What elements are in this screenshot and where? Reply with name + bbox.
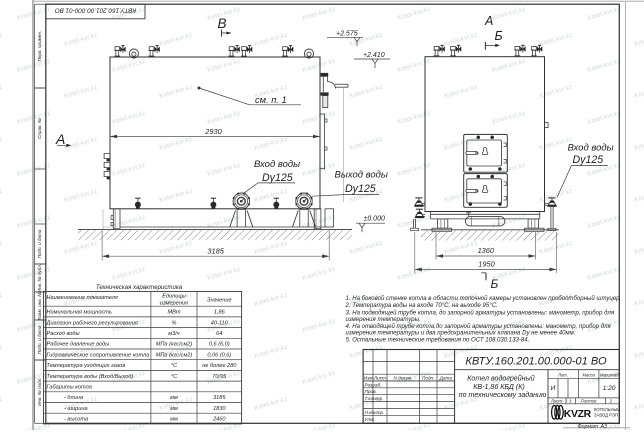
- svg-text:Kotel-kvr.kz: Kotel-kvr.kz: [539, 84, 574, 100]
- svg-text:2460: 2460: [212, 417, 226, 423]
- svg-text:±0.000: ±0.000: [364, 216, 385, 223]
- svg-text:N докум.: N докум.: [394, 375, 413, 380]
- svg-text:Лист: Лист: [550, 399, 562, 404]
- svg-text:Kotel-kvr.kz: Kotel-kvr.kz: [634, 344, 644, 360]
- svg-text:Kotel-kvr.kz: Kotel-kvr.kz: [159, 188, 194, 204]
- svg-text:Справ. №: Справ. №: [37, 118, 42, 139]
- svg-text:Dy125: Dy125: [345, 183, 376, 195]
- svg-text:Kotel-kvr.kz: Kotel-kvr.kz: [492, 58, 527, 74]
- svg-text:Температура воды (Вход/Выход): Температура воды (Вход/Выход): [47, 374, 134, 380]
- svg-text:А3: А3: [600, 424, 607, 430]
- svg-text:Вход воды: Вход воды: [568, 142, 614, 153]
- svg-text:Kotel-kvr.kz: Kotel-kvr.kz: [254, 240, 289, 256]
- svg-text:- длина: - длина: [64, 395, 83, 401]
- svg-text:Kotel-kvr.kz: Kotel-kvr.kz: [0, 84, 3, 100]
- svg-text:Kotel-kvr.kz: Kotel-kvr.kz: [634, 188, 644, 204]
- svg-text:Kotel-kvr.kz: Kotel-kvr.kz: [64, 188, 99, 204]
- svg-text:Kotel-kvr.kz: Kotel-kvr.kz: [0, 292, 3, 308]
- svg-text:Dy125: Dy125: [573, 154, 604, 166]
- svg-text:Дата: Дата: [439, 375, 453, 380]
- svg-text:Расход воды: Расход воды: [47, 331, 80, 337]
- svg-text:Габариты котла: Габариты котла: [47, 385, 92, 391]
- svg-text:Kotel-kvr.kz: Kotel-kvr.kz: [397, 266, 432, 282]
- svg-text:Kotel-kvr.kz: Kotel-kvr.kz: [349, 84, 384, 100]
- svg-text:МВт: МВт: [167, 310, 180, 316]
- svg-text:Kotel-kvr.kz: Kotel-kvr.kz: [112, 214, 147, 230]
- svg-text:Инв. № дубл.: Инв. № дубл.: [37, 264, 42, 292]
- svg-text:Kotel-kvr.kz: Kotel-kvr.kz: [0, 188, 3, 204]
- svg-text:Подп. и дата: Подп. и дата: [37, 325, 42, 354]
- svg-text:40-110: 40-110: [211, 320, 229, 326]
- svg-text:м3/ч: м3/ч: [168, 331, 179, 337]
- svg-text:КВТУ.160.201.00.000-01 ВО: КВТУ.160.201.00.000-01 ВО: [465, 356, 607, 368]
- svg-text:Наименование показателя: Наименование показателя: [47, 295, 118, 301]
- svg-text:Kotel-kvr.kz: Kotel-kvr.kz: [0, 136, 3, 152]
- svg-text:Kotel-kvr.kz: Kotel-kvr.kz: [492, 162, 527, 178]
- svg-text:мм: мм: [170, 395, 178, 401]
- svg-text:Kotel-kvr.kz: Kotel-kvr.kz: [634, 396, 644, 412]
- svg-text:Kotel-kvr.kz: Kotel-kvr.kz: [112, 162, 147, 178]
- svg-text:Единицы: Единицы: [162, 294, 185, 300]
- svg-text:Kotel-kvr.kz: Kotel-kvr.kz: [397, 6, 432, 22]
- svg-text:Kotel-kvr.kz: Kotel-kvr.kz: [254, 32, 289, 48]
- svg-text:Диапазон рабочего регулировани: Диапазон рабочего регулирования: [46, 320, 138, 326]
- svg-text:Kotel-kvr.kz: Kotel-kvr.kz: [302, 6, 337, 22]
- svg-text:Рабочее давление воды: Рабочее давление воды: [47, 342, 110, 348]
- svg-text:КОТЕЛЬНЫЙ: КОТЕЛЬНЫЙ: [594, 407, 620, 412]
- svg-text:Kotel-kvr.kz: Kotel-kvr.kz: [587, 110, 622, 126]
- svg-text:Kotel-kvr.kz: Kotel-kvr.kz: [397, 162, 432, 178]
- svg-text:Техническая характеристика: Техническая характеристика: [96, 284, 183, 291]
- svg-text:Kotel-kvr.kz: Kotel-kvr.kz: [159, 240, 194, 256]
- svg-text:Kotel-kvr.kz: Kotel-kvr.kz: [207, 266, 242, 282]
- svg-text:KVZR: KVZR: [564, 409, 592, 420]
- svg-text:КВ-1,86 КБД (К): КВ-1,86 КБД (К): [473, 383, 525, 391]
- svg-text:Kotel-kvr.kz: Kotel-kvr.kz: [397, 110, 432, 126]
- svg-text:70/95: 70/95: [212, 374, 227, 380]
- svg-text:Kotel-kvr.kz: Kotel-kvr.kz: [112, 110, 147, 126]
- svg-text:2. Температура воды на входе: 2. Температура воды на входе 70°С, на вы…: [345, 303, 498, 309]
- svg-text:Б: Б: [491, 277, 499, 291]
- svg-text:4. На отводящей трубе котла,д: 4. На отводящей трубе котла,до запорной …: [346, 323, 612, 330]
- svg-text:Kotel-kvr.kz: Kotel-kvr.kz: [254, 344, 289, 360]
- svg-text:Номинальная мощность: Номинальная мощность: [47, 310, 112, 316]
- svg-text:Kotel-kvr.kz: Kotel-kvr.kz: [64, 136, 99, 152]
- svg-text:А: А: [484, 14, 493, 28]
- svg-text:Kotel-kvr.kz: Kotel-kvr.kz: [254, 396, 289, 412]
- svg-text:ЗАВОД РЭП: ЗАВОД РЭП: [594, 412, 618, 417]
- svg-text:Kotel-kvr.kz: Kotel-kvr.kz: [444, 32, 479, 48]
- svg-text:Kotel-kvr.kz: Kotel-kvr.kz: [302, 162, 337, 178]
- svg-text:Kotel-kvr.kz: Kotel-kvr.kz: [207, 58, 242, 74]
- svg-text:Инв. № подл.: Инв. № подл.: [37, 377, 42, 406]
- svg-text:КВТУ.160.201.00.000-01 ВО: КВТУ.160.201.00.000-01 ВО: [55, 6, 136, 13]
- svg-text:1950: 1950: [478, 260, 495, 269]
- svg-text:Формат: Формат: [578, 424, 599, 430]
- svg-text:Kotel-kvr.kz: Kotel-kvr.kz: [397, 214, 432, 230]
- svg-text:Листов: Листов: [580, 399, 597, 404]
- svg-text:Б: Б: [495, 29, 503, 43]
- svg-text:Kotel-kvr.kz: Kotel-kvr.kz: [492, 110, 527, 126]
- svg-text:1360: 1360: [478, 246, 495, 255]
- svg-text:Масса: Масса: [583, 373, 596, 378]
- svg-text:Н.контр.: Н.контр.: [365, 410, 385, 415]
- svg-text:Kotel-kvr.kz: Kotel-kvr.kz: [159, 136, 194, 152]
- svg-text:Kotel-kvr.kz: Kotel-kvr.kz: [0, 240, 3, 256]
- svg-text:Изм.Лист: Изм.Лист: [364, 375, 386, 380]
- svg-text:А: А: [55, 131, 65, 147]
- svg-text:3185: 3185: [207, 246, 224, 255]
- svg-text:МПа (кгс/см2): МПа (кгс/см2): [156, 342, 193, 348]
- svg-text:Kotel-kvr.kz: Kotel-kvr.kz: [0, 32, 3, 48]
- svg-text:Kotel-kvr.kz: Kotel-kvr.kz: [0, 396, 3, 412]
- svg-text:Kotel-kvr.kz: Kotel-kvr.kz: [634, 136, 644, 152]
- svg-text:Kotel-kvr.kz: Kotel-kvr.kz: [207, 214, 242, 230]
- svg-text:Kotel-kvr.kz: Kotel-kvr.kz: [444, 136, 479, 152]
- svg-text:Kotel-kvr.kz: Kotel-kvr.kz: [0, 344, 3, 360]
- svg-text:Температура уходящих газов: Температура уходящих газов: [47, 363, 126, 369]
- svg-text:Kotel-kvr.kz: Kotel-kvr.kz: [539, 32, 574, 48]
- svg-text:Kotel-kvr.kz: Kotel-kvr.kz: [349, 136, 384, 152]
- svg-text:Kotel-kvr.kz: Kotel-kvr.kz: [159, 84, 194, 100]
- svg-text:измерения температуры.: измерения температуры.: [346, 317, 421, 323]
- svg-text:Kotel-kvr.kz: Kotel-kvr.kz: [302, 58, 337, 74]
- svg-text:Kotel-kvr.kz: Kotel-kvr.kz: [587, 266, 622, 282]
- svg-text:Вход воды: Вход воды: [254, 159, 300, 170]
- svg-text:не более 280: не более 280: [202, 363, 237, 369]
- svg-text:Kotel-kvr.kz: Kotel-kvr.kz: [444, 240, 479, 256]
- svg-text:Утв.: Утв.: [365, 417, 376, 422]
- svg-text:+2.410: +2.410: [363, 52, 385, 59]
- svg-text:Гидравлическое сопротивление к: Гидравлическое сопротивление котла: [47, 352, 150, 358]
- svg-text:Лит.: Лит.: [557, 373, 568, 378]
- svg-text:+2.575: +2.575: [336, 31, 358, 38]
- svg-text:- высота: - высота: [64, 417, 88, 423]
- svg-text:Kotel-kvr.kz: Kotel-kvr.kz: [349, 344, 384, 360]
- svg-text:мм: мм: [170, 417, 178, 423]
- svg-text:по техническому заданию: по техническому заданию: [459, 391, 547, 399]
- svg-text:Разраб.: Разраб.: [365, 382, 382, 387]
- svg-text:1,86: 1,86: [214, 310, 226, 316]
- svg-text:Взам. инв. №: Взам. инв. №: [37, 292, 42, 320]
- svg-text:Kotel-kvr.kz: Kotel-kvr.kz: [302, 110, 337, 126]
- svg-text:1. На боковой стенке котла в: 1. На боковой стенке котла в области топ…: [346, 295, 621, 302]
- svg-text:Kotel-kvr.kz: Kotel-kvr.kz: [539, 188, 574, 204]
- svg-text:64: 64: [216, 331, 222, 337]
- svg-text:Kotel-kvr.kz: Kotel-kvr.kz: [634, 240, 644, 256]
- svg-text:И: И: [551, 385, 556, 392]
- svg-text:2: 2: [609, 399, 613, 404]
- svg-text:мм: мм: [170, 406, 178, 412]
- svg-text:Kotel-kvr.kz: Kotel-kvr.kz: [349, 240, 384, 256]
- svg-text:Kotel-kvr.kz: Kotel-kvr.kz: [302, 370, 337, 386]
- svg-text:измерения температуры и два пр: измерения температуры и два предохраните…: [346, 331, 576, 337]
- svg-text:°С: °С: [171, 374, 178, 380]
- svg-text:Kotel-kvr.kz: Kotel-kvr.kz: [159, 32, 194, 48]
- svg-text:Т.контр.: Т.контр.: [365, 396, 384, 401]
- svg-text:Kotel-kvr.kz: Kotel-kvr.kz: [64, 240, 99, 256]
- svg-text:Kotel-kvr.kz: Kotel-kvr.kz: [587, 6, 622, 22]
- svg-text:Kotel-kvr.kz: Kotel-kvr.kz: [634, 84, 644, 100]
- svg-text:1830: 1830: [213, 406, 226, 412]
- svg-text:3. На подводящей трубе котла,: 3. На подводящей трубе котла, до запорно…: [346, 310, 615, 317]
- svg-text:- ширина: - ширина: [64, 406, 88, 412]
- svg-text:В: В: [218, 16, 227, 31]
- svg-text:измерения: измерения: [160, 300, 188, 306]
- svg-text:Пров.: Пров.: [365, 389, 377, 394]
- svg-text:2930: 2930: [204, 127, 222, 136]
- svg-text:Kotel-kvr.kz: Kotel-kvr.kz: [302, 214, 337, 230]
- svg-text:0,6 (6,0): 0,6 (6,0): [209, 342, 230, 348]
- svg-text:Kotel-kvr.kz: Kotel-kvr.kz: [444, 84, 479, 100]
- svg-text:Kotel-kvr.kz: Kotel-kvr.kz: [587, 214, 622, 230]
- svg-text:Kotel-kvr.kz: Kotel-kvr.kz: [634, 292, 644, 308]
- svg-text:Подп. и дата: Подп. и дата: [37, 229, 42, 258]
- svg-text:Kotel-kvr.kz: Kotel-kvr.kz: [539, 240, 574, 256]
- svg-text:Котел водогрейный: Котел водогрейный: [467, 375, 535, 383]
- svg-text:Kotel-kvr.kz: Kotel-kvr.kz: [492, 6, 527, 22]
- svg-text:%: %: [172, 320, 177, 326]
- svg-text:Kotel-kvr.kz: Kotel-kvr.kz: [207, 110, 242, 126]
- svg-text:°С: °С: [171, 363, 178, 369]
- svg-text:Подп.: Подп.: [422, 375, 434, 380]
- svg-text:Kotel-kvr.kz: Kotel-kvr.kz: [587, 58, 622, 74]
- svg-text:Dy125: Dy125: [262, 172, 293, 184]
- svg-text:Выход воды: Выход воды: [335, 170, 388, 181]
- svg-text:5. Остальные технические треб: 5. Остальные технические требования по О…: [346, 338, 530, 344]
- svg-text:Kotel-kvr.kz: Kotel-kvr.kz: [254, 188, 289, 204]
- svg-text:Kotel-kvr.kz: Kotel-kvr.kz: [302, 318, 337, 334]
- svg-text:Kotel-kvr.kz: Kotel-kvr.kz: [397, 58, 432, 74]
- svg-text:3185: 3185: [213, 395, 226, 401]
- svg-text:Перв. примен.: Перв. примен.: [37, 31, 42, 62]
- svg-text:Kotel-kvr.kz: Kotel-kvr.kz: [112, 58, 147, 74]
- svg-text:Kotel-kvr.kz: Kotel-kvr.kz: [254, 292, 289, 308]
- svg-text:Масштаб: Масштаб: [600, 373, 619, 378]
- svg-text:Значение: Значение: [207, 298, 232, 304]
- svg-text:1:20: 1:20: [603, 385, 616, 392]
- svg-text:Kotel-kvr.kz: Kotel-kvr.kz: [302, 266, 337, 282]
- svg-text:Kotel-kvr.kz: Kotel-kvr.kz: [64, 32, 99, 48]
- svg-text:Kotel-kvr.kz: Kotel-kvr.kz: [112, 266, 147, 282]
- svg-text:Kotel-kvr.kz: Kotel-kvr.kz: [254, 136, 289, 152]
- svg-text:Kotel-kvr.kz: Kotel-kvr.kz: [64, 84, 99, 100]
- svg-text:МПа (кгс/см2): МПа (кгс/см2): [156, 352, 193, 358]
- svg-text:см. п. 1: см. п. 1: [255, 95, 287, 105]
- svg-text:0,06 (0,6): 0,06 (0,6): [207, 352, 231, 358]
- svg-text:Kotel-kvr.kz: Kotel-kvr.kz: [634, 32, 644, 48]
- svg-text:Kotel-kvr.kz: Kotel-kvr.kz: [207, 162, 242, 178]
